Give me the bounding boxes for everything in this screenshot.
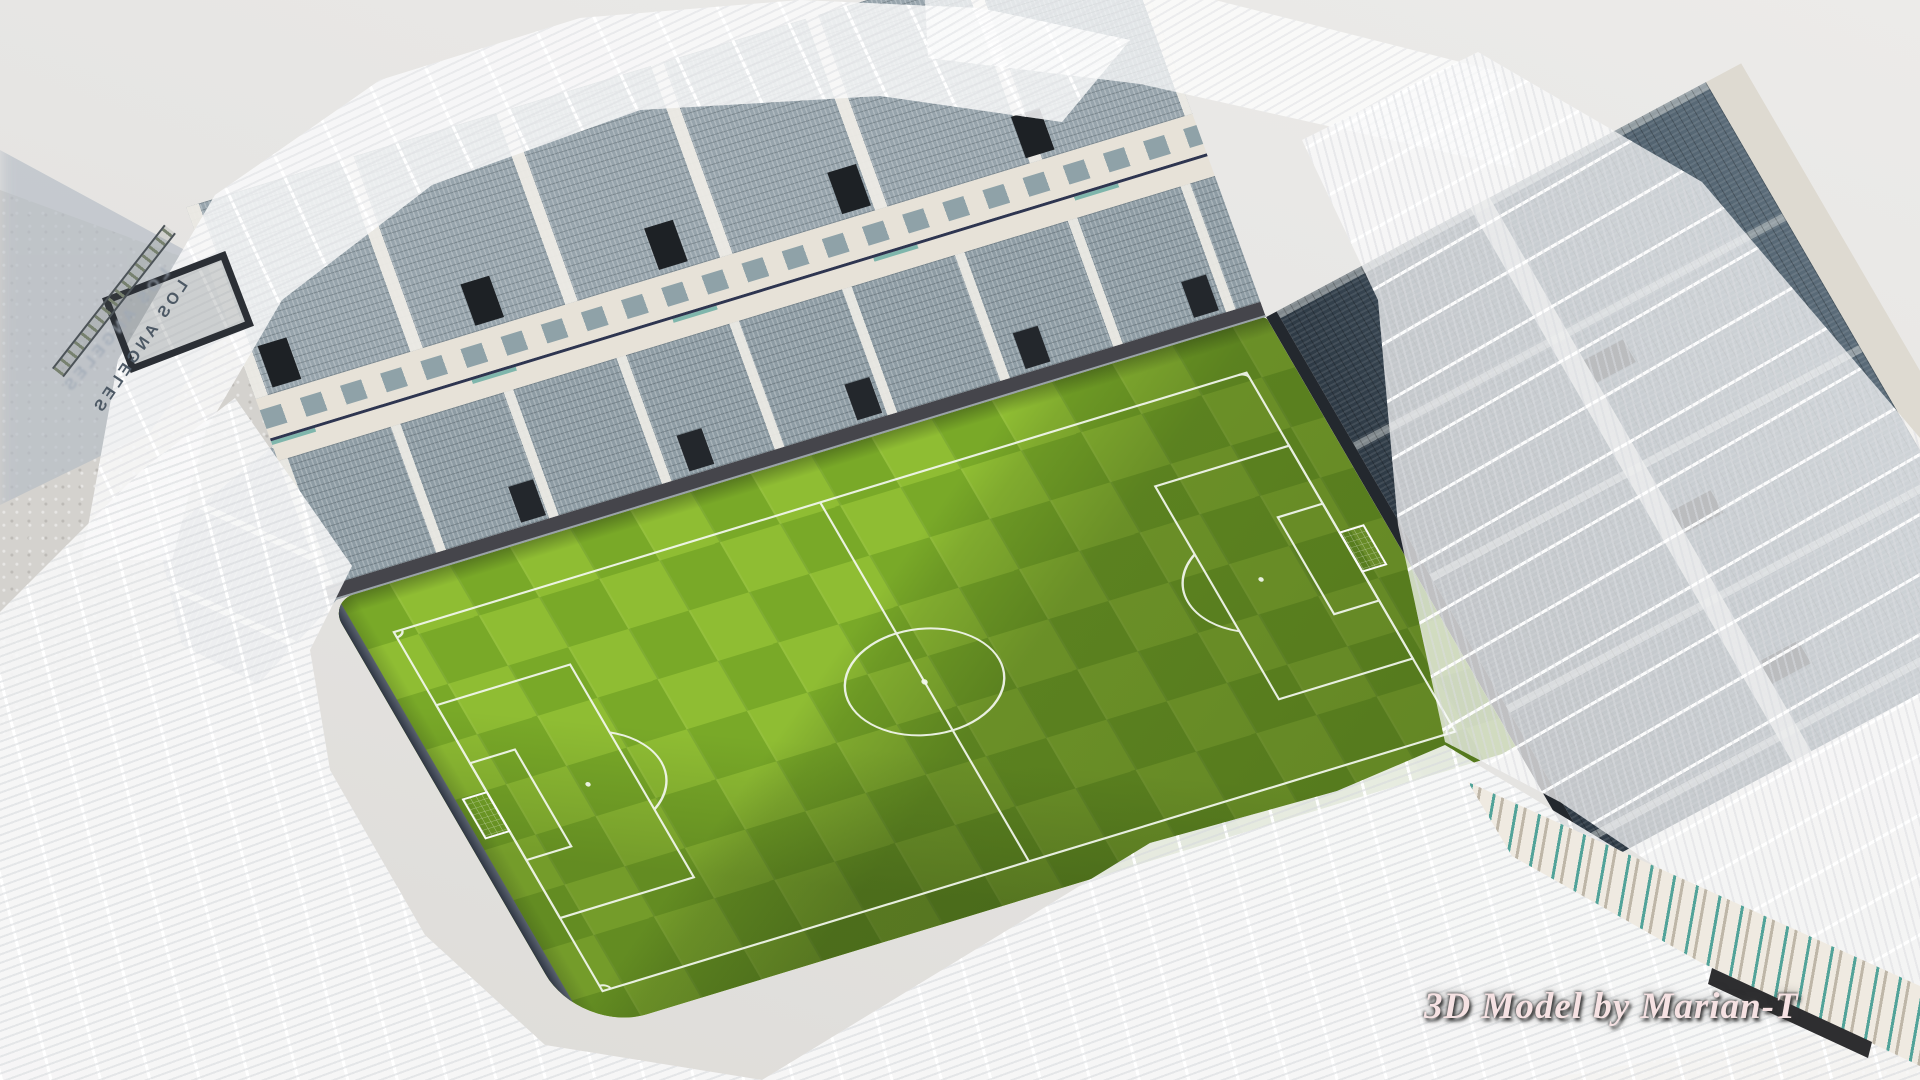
goal-east [1340,525,1387,571]
watermark-text: 3D Model by Marian-T [1424,985,1799,1028]
stadium-render-scene: LOS ANGELES LOS ANGELES 3D Model by Mari… [0,0,1920,1080]
goal-west [463,792,510,838]
